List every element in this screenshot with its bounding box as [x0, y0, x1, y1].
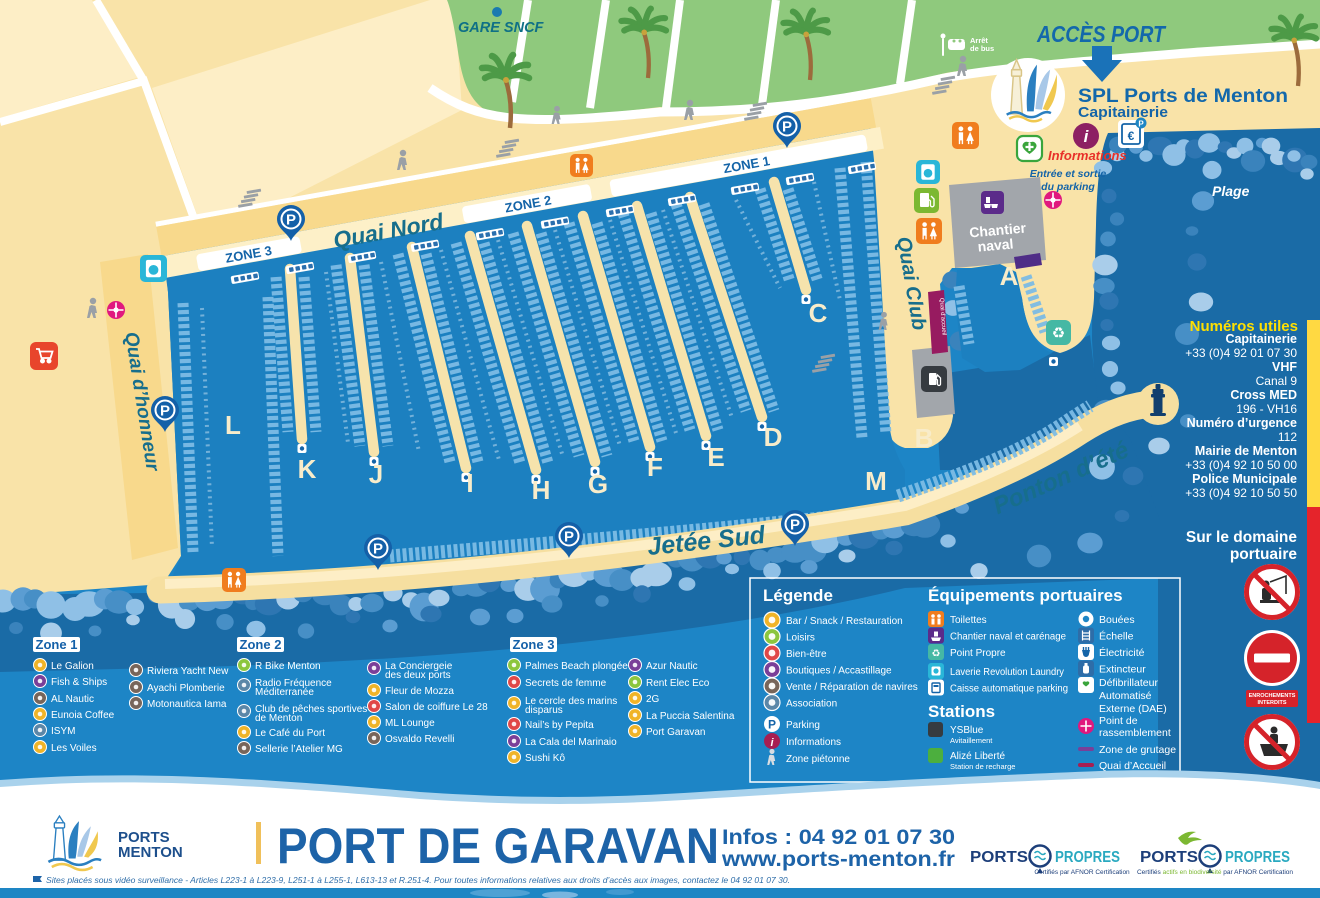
svg-text:PORTS: PORTS	[1140, 849, 1198, 866]
svg-text:Défibrillateur: Défibrillateur	[1099, 677, 1158, 689]
svg-text:Bouées: Bouées	[1099, 614, 1135, 626]
svg-text:Équipements portuaires: Équipements portuaires	[928, 586, 1123, 605]
svg-text:Zone piétonne: Zone piétonne	[786, 754, 850, 765]
svg-text:C: C	[809, 298, 828, 328]
svg-text:Le Galion: Le Galion	[51, 661, 94, 672]
svg-text:VHF: VHF	[1272, 360, 1297, 374]
svg-text:Police Municipale: Police Municipale	[1192, 472, 1297, 486]
svg-text:R Bike Menton: R Bike Menton	[255, 661, 321, 672]
svg-text:P: P	[286, 212, 296, 229]
svg-text:La Puccia Salentina: La Puccia Salentina	[646, 711, 735, 722]
svg-text:Cross MED: Cross MED	[1230, 388, 1297, 402]
svg-text:Zone 1: Zone 1	[36, 637, 78, 652]
svg-text:Les Voiles: Les Voiles	[51, 743, 97, 754]
svg-text:196 - VH16: 196 - VH16	[1236, 402, 1297, 416]
svg-text:Extincteur: Extincteur	[1099, 664, 1146, 676]
svg-text:Loisirs: Loisirs	[786, 633, 815, 644]
svg-text:PORTS: PORTS	[970, 849, 1028, 866]
svg-text:Quai d’Accueil: Quai d’Accueil	[1099, 760, 1166, 772]
svg-text:M: M	[865, 466, 887, 496]
svg-text:Port Garavan: Port Garavan	[646, 727, 705, 738]
svg-text:Bar / Snack / Restauration: Bar / Snack / Restauration	[786, 616, 903, 627]
svg-text:+33 (0)4 92 01 07 30: +33 (0)4 92 01 07 30	[1185, 346, 1297, 360]
svg-text:portuaire: portuaire	[1230, 546, 1298, 563]
svg-text:Sites placés sous vidéo survei: Sites placés sous vidéo surveillance - A…	[46, 875, 790, 885]
svg-text:Sellerie l’Atelier MG: Sellerie l’Atelier MG	[255, 744, 343, 755]
svg-text:K: K	[298, 454, 317, 484]
svg-text:Zone de grutage: Zone de grutage	[1099, 744, 1176, 756]
svg-text:INTERDITS: INTERDITS	[1257, 700, 1286, 706]
svg-text:P: P	[790, 517, 800, 534]
svg-text:♻: ♻	[932, 649, 941, 660]
svg-text:ENROCHEMENTS: ENROCHEMENTS	[1249, 693, 1296, 699]
svg-text:Nail’s by Pepita: Nail’s by Pepita	[525, 720, 594, 731]
svg-text:B: B	[915, 423, 934, 453]
svg-text:Externe (DAE): Externe (DAE)	[1099, 703, 1167, 715]
svg-text:YSBlue: YSBlue	[950, 725, 984, 736]
svg-text:ISYM: ISYM	[51, 726, 75, 737]
svg-text:rassemblement: rassemblement	[1099, 727, 1171, 739]
svg-text:Boutiques / Accastillage: Boutiques / Accastillage	[786, 666, 892, 677]
svg-text:de bus: de bus	[970, 44, 994, 53]
svg-text:Infos : 04 92 01 07 30: Infos : 04 92 01 07 30	[722, 826, 955, 849]
svg-text:Certifiés par AFNOR Certificat: Certifiés par AFNOR Certification	[1034, 869, 1130, 876]
svg-text:Zone 2: Zone 2	[240, 637, 282, 652]
svg-text:Secrets de femme: Secrets de femme	[525, 678, 607, 689]
svg-text:Échelle: Échelle	[1099, 630, 1134, 643]
svg-text:112: 112	[1278, 430, 1297, 444]
svg-text:Rent Elec Eco: Rent Elec Eco	[646, 678, 710, 689]
svg-text:Azur Nautic: Azur Nautic	[646, 661, 698, 672]
svg-text:Plage: Plage	[1212, 183, 1250, 199]
svg-text:+33 (0)4 92 10 50 50: +33 (0)4 92 10 50 50	[1185, 486, 1297, 500]
svg-text:PROPRES: PROPRES	[1225, 849, 1290, 866]
svg-text:naval: naval	[977, 235, 1014, 254]
svg-text:Stations: Stations	[928, 702, 995, 721]
svg-text:Motonautica Iama: Motonautica Iama	[147, 699, 227, 710]
svg-text:Zone 3: Zone 3	[513, 637, 555, 652]
svg-text:D: D	[764, 422, 783, 452]
svg-text:P: P	[160, 403, 170, 420]
svg-text:Ayachi Plomberie: Ayachi Plomberie	[147, 683, 225, 694]
svg-text:Osvaldo Revelli: Osvaldo Revelli	[385, 734, 454, 745]
svg-text:Alizé Liberté: Alizé Liberté	[950, 751, 1005, 762]
svg-text:Riviera Yacht New: Riviera Yacht New	[147, 666, 229, 677]
svg-text:Capitainerie: Capitainerie	[1225, 332, 1297, 346]
svg-text:PORT DE GARAVAN: PORT DE GARAVAN	[277, 818, 719, 874]
svg-text:H: H	[532, 475, 551, 505]
svg-text:P: P	[564, 529, 574, 546]
svg-text:Le Café du Port: Le Café du Port	[255, 728, 325, 739]
svg-text:des deux ports: des deux ports	[385, 670, 451, 681]
svg-text:Méditerranée: Méditerranée	[255, 687, 314, 698]
svg-text:€: €	[1128, 129, 1135, 143]
svg-text:Point Propre: Point Propre	[950, 648, 1006, 659]
svg-text:Avitaillement: Avitaillement	[950, 736, 993, 745]
svg-text:AL Nautic: AL Nautic	[51, 694, 94, 705]
svg-text:PROPRES: PROPRES	[1055, 849, 1120, 866]
svg-text:Palmes Beach plongée: Palmes Beach plongée	[525, 661, 628, 672]
svg-text:Certifiés actifs en biodiversi: Certifiés actifs en biodiversité par AFN…	[1137, 869, 1293, 876]
svg-text:Informations: Informations	[1048, 148, 1127, 163]
svg-text:ACCÈS PORT: ACCÈS PORT	[1036, 20, 1166, 47]
svg-text:ML Lounge: ML Lounge	[385, 718, 435, 729]
svg-text:Légende: Légende	[763, 586, 833, 605]
svg-text:disparus: disparus	[525, 705, 563, 716]
svg-text:L: L	[225, 410, 241, 440]
svg-text:2G: 2G	[646, 694, 660, 705]
svg-text:Laverie Revolution Laundry: Laverie Revolution Laundry	[950, 667, 1064, 678]
svg-text:du parking: du parking	[1041, 181, 1095, 193]
svg-text:Fleur de Mozza: Fleur de Mozza	[385, 686, 454, 697]
svg-text:Entrée et sortie: Entrée et sortie	[1030, 168, 1107, 180]
svg-text:Point de: Point de	[1099, 715, 1138, 727]
svg-text:La Cala del Marinaio: La Cala del Marinaio	[525, 737, 617, 748]
svg-text:www.ports-menton.fr: www.ports-menton.fr	[721, 848, 955, 871]
svg-text:E: E	[707, 442, 724, 472]
svg-text:Eunoia Coffee: Eunoia Coffee	[51, 710, 115, 721]
svg-text:Mairie de Menton: Mairie de Menton	[1195, 444, 1297, 458]
svg-text:Caisse automatique parking: Caisse automatique parking	[950, 684, 1068, 695]
svg-text:GARE SNCF: GARE SNCF	[458, 20, 545, 36]
svg-text:Numéro d’urgence: Numéro d’urgence	[1187, 416, 1297, 430]
svg-text:G: G	[588, 469, 608, 499]
svg-text:Canal 9: Canal 9	[1256, 374, 1298, 388]
svg-text:Bien-être: Bien-être	[786, 649, 827, 660]
svg-text:Sushi Kô: Sushi Kô	[525, 753, 565, 764]
svg-text:Automatisé: Automatisé	[1099, 690, 1152, 702]
svg-text:Fish & Ships: Fish & Ships	[51, 677, 107, 688]
svg-text:F: F	[647, 452, 663, 482]
svg-text:♻: ♻	[1052, 325, 1065, 342]
svg-text:Association: Association	[786, 699, 837, 710]
svg-text:P: P	[768, 718, 776, 732]
svg-text:P: P	[782, 119, 792, 136]
svg-text:Capitainerie: Capitainerie	[1078, 104, 1168, 121]
svg-text:MENTON: MENTON	[118, 844, 183, 861]
svg-text:Toilettes: Toilettes	[950, 615, 987, 626]
svg-text:P: P	[373, 541, 383, 558]
svg-text:Salon de coiffure Le 28: Salon de coiffure Le 28	[385, 702, 488, 713]
svg-text:+33 (0)4 92 10 50 00: +33 (0)4 92 10 50 00	[1185, 458, 1297, 472]
svg-text:J: J	[369, 459, 383, 489]
svg-text:Chantier naval et carénage: Chantier naval et carénage	[950, 632, 1066, 643]
svg-text:Informations: Informations	[786, 737, 841, 748]
svg-text:Vente / Réparation de navires: Vente / Réparation de navires	[786, 682, 918, 693]
svg-text:Parking: Parking	[786, 720, 820, 731]
svg-text:de Menton: de Menton	[255, 713, 302, 724]
svg-text:Électricité: Électricité	[1099, 646, 1145, 659]
svg-text:Sur le domaine: Sur le domaine	[1186, 529, 1297, 546]
svg-text:I: I	[466, 468, 473, 498]
svg-text:Station de recharge: Station de recharge	[950, 762, 1015, 771]
